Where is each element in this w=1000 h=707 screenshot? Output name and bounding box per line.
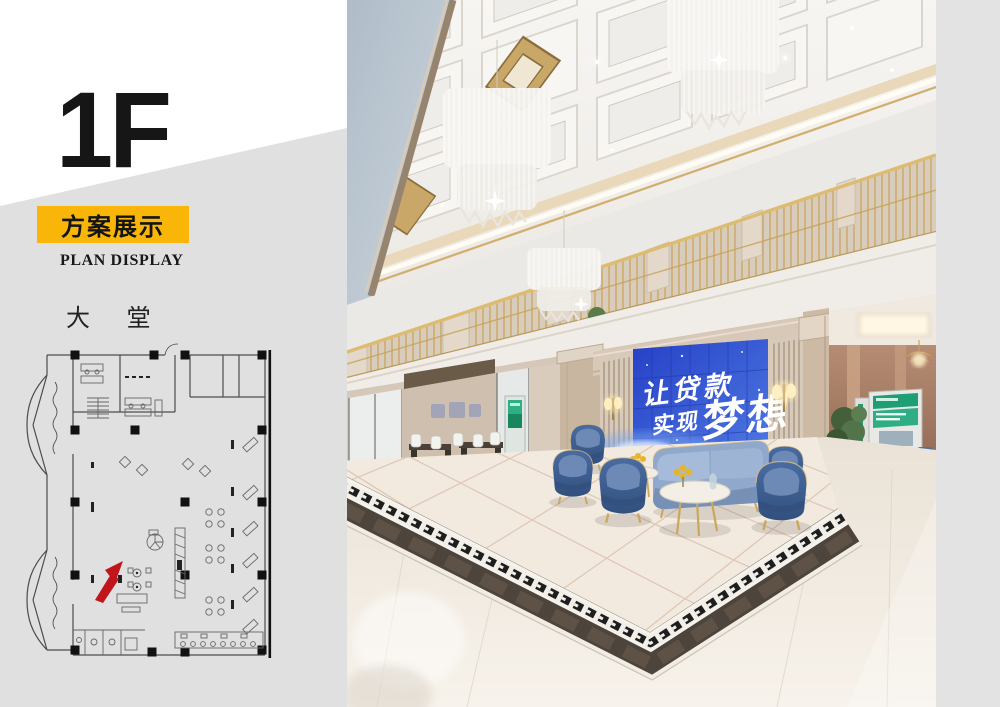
floorplan-drawing (25, 342, 300, 672)
decanter (709, 473, 717, 490)
floor-label: 1F (56, 76, 168, 184)
chandelier (667, 0, 779, 128)
armchair (751, 462, 811, 535)
left-panel: 1F 方案展示 PLAN DISPLAY 大 堂 (0, 0, 347, 707)
plan-subtitle: PLAN DISPLAY (60, 252, 184, 270)
display-case (505, 396, 525, 458)
armchair (595, 458, 652, 528)
wall-logo-blur (431, 402, 481, 418)
plan-columns (71, 350, 272, 658)
lobby-rendering: 让贷款 实现 梦想 (347, 0, 936, 707)
lobby-scene: 让贷款 实现 梦想 (347, 0, 936, 707)
plan-banner: 方案展示 (37, 206, 189, 243)
presentation-page: 1F 方案展示 PLAN DISPLAY 大 堂 (0, 0, 1000, 707)
area-label: 大 堂 (66, 298, 166, 333)
plan-furniture (73, 364, 263, 655)
armchair (549, 450, 597, 508)
right-margin-strip (936, 0, 1000, 707)
